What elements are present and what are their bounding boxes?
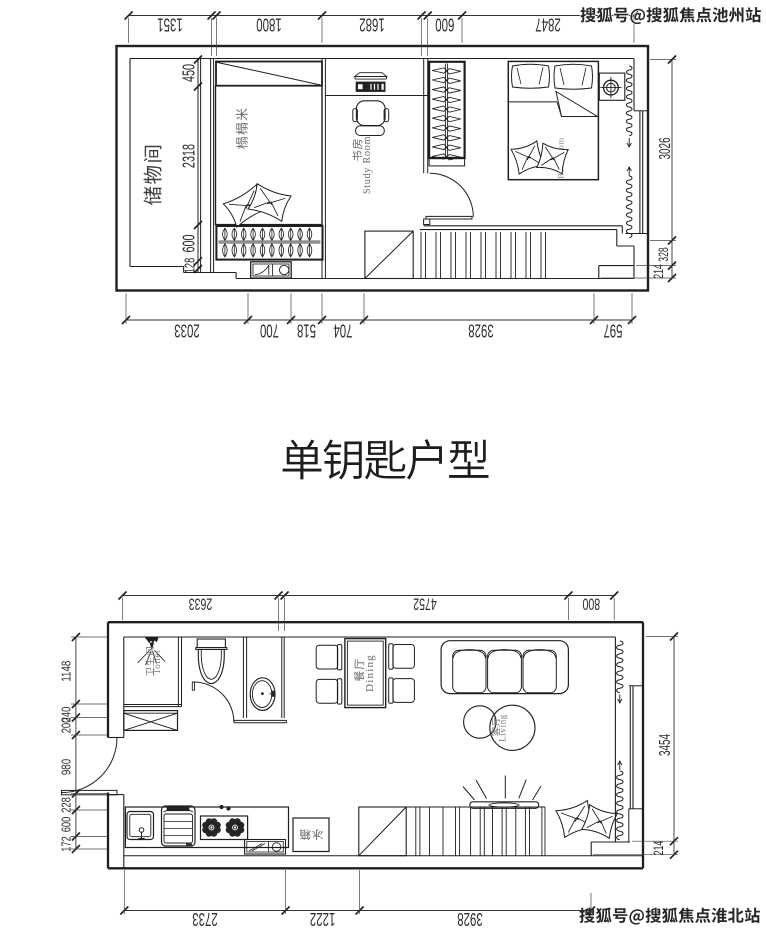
svg-text:200: 200 — [60, 718, 74, 734]
svg-text:2033: 2033 — [174, 320, 200, 340]
svg-text:Toilet: Toilet — [152, 650, 162, 674]
svg-text:3026: 3026 — [656, 137, 674, 159]
svg-text:Study Room: Study Room — [362, 136, 373, 194]
svg-text:1351: 1351 — [157, 14, 183, 34]
svg-text:518: 518 — [297, 320, 316, 340]
svg-text:214: 214 — [651, 264, 667, 279]
svg-text:1682: 1682 — [359, 14, 385, 34]
svg-text:600: 600 — [180, 234, 199, 252]
svg-text:450: 450 — [180, 64, 199, 82]
svg-text:Dining: Dining — [364, 654, 376, 692]
svg-text:2733: 2733 — [192, 908, 218, 928]
svg-text:800: 800 — [582, 595, 600, 614]
svg-text:128: 128 — [181, 258, 198, 274]
svg-text:2633: 2633 — [189, 595, 213, 614]
svg-text:1148: 1148 — [60, 661, 74, 682]
svg-text:2318: 2318 — [180, 144, 199, 168]
svg-text:214: 214 — [651, 840, 667, 855]
svg-text:4752: 4752 — [413, 595, 437, 614]
svg-text:1222: 1222 — [310, 908, 336, 928]
svg-text:1800: 1800 — [256, 14, 282, 34]
svg-text:3928: 3928 — [468, 320, 494, 340]
svg-text:328: 328 — [656, 247, 672, 261]
svg-text:600: 600 — [435, 14, 454, 34]
svg-text:700: 700 — [260, 320, 279, 340]
svg-text:600: 600 — [60, 817, 74, 833]
svg-text:704: 704 — [333, 320, 352, 340]
svg-text:980: 980 — [60, 759, 74, 775]
svg-text:3928: 3928 — [457, 908, 483, 928]
svg-text:172: 172 — [60, 836, 74, 852]
svg-text:3454: 3454 — [656, 734, 674, 756]
svg-text:Living: Living — [498, 714, 508, 742]
svg-text:228: 228 — [60, 797, 74, 813]
svg-text:597: 597 — [603, 320, 622, 340]
svg-text:2847: 2847 — [535, 14, 561, 34]
